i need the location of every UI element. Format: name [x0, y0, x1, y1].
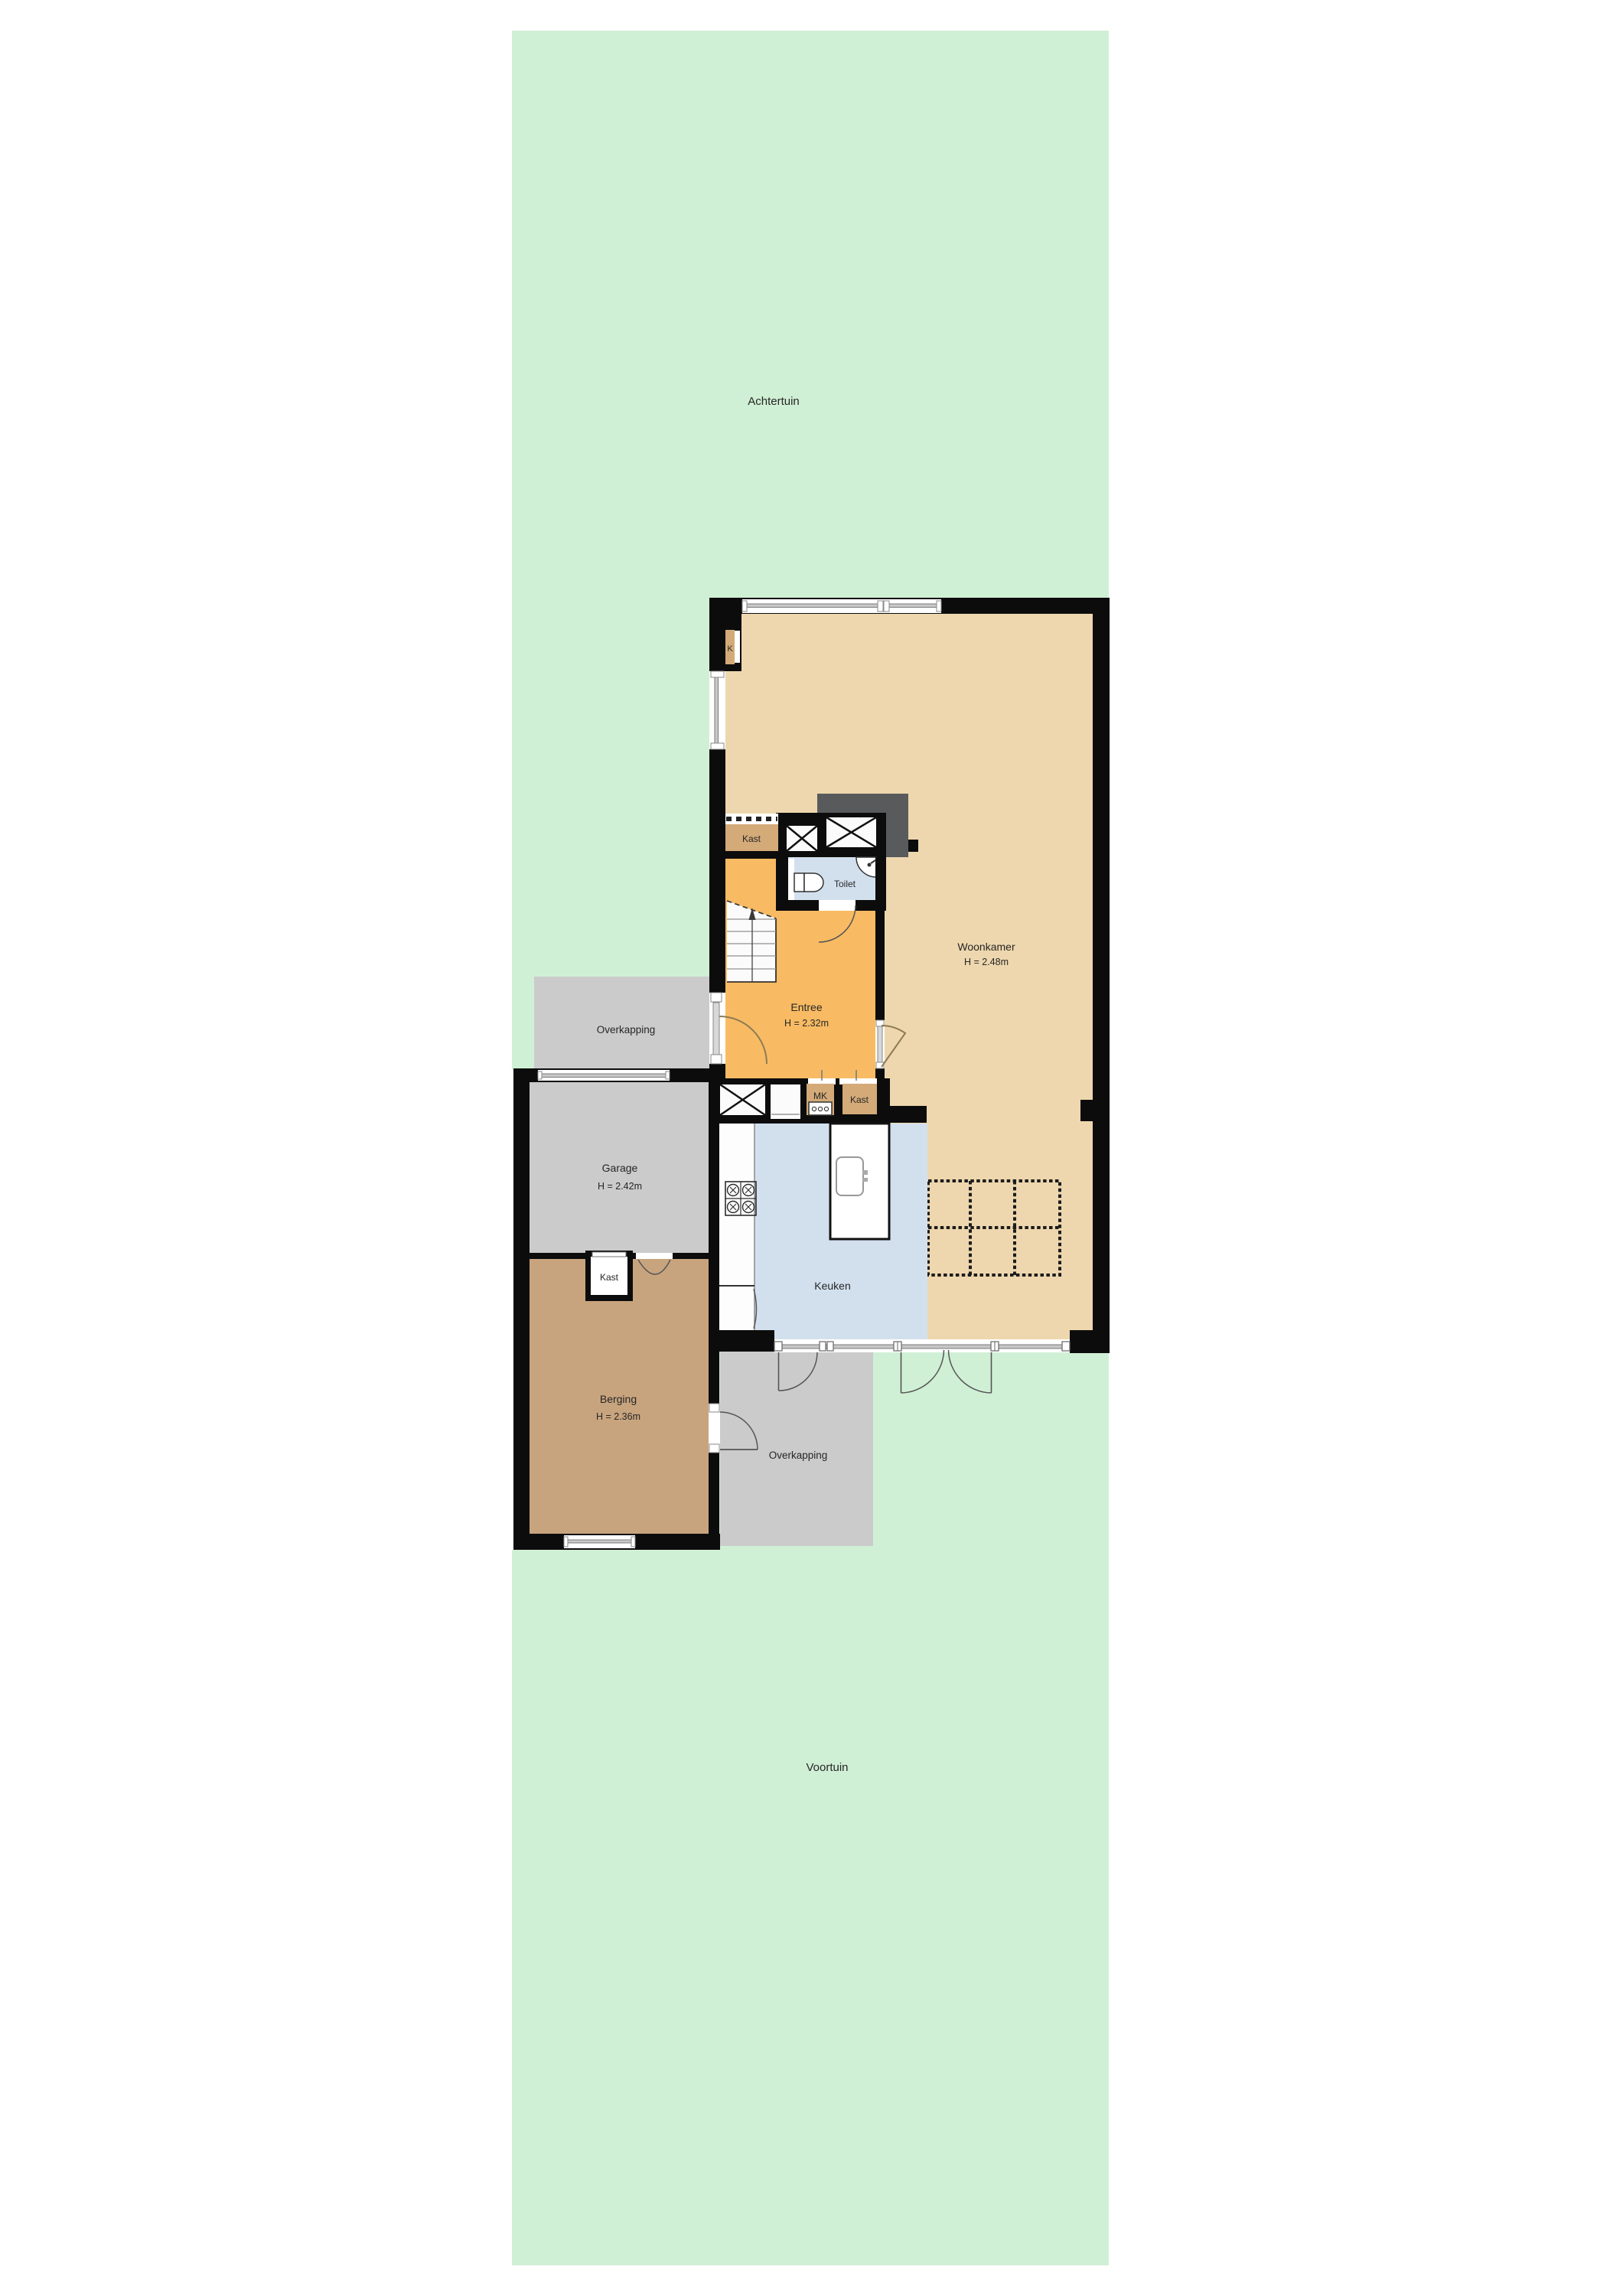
svg-text:H = 2.36m: H = 2.36m — [596, 1411, 640, 1422]
svg-text:H = 2.48m: H = 2.48m — [964, 957, 1009, 967]
svg-text:Woonkamer: Woonkamer — [957, 941, 1015, 953]
svg-text:Berging: Berging — [600, 1393, 637, 1405]
svg-text:Achtertuin: Achtertuin — [748, 395, 800, 408]
svg-text:H = 2.32m: H = 2.32m — [784, 1018, 829, 1029]
svg-text:H = 2.42m: H = 2.42m — [598, 1181, 642, 1192]
svg-text:Kast: Kast — [742, 833, 761, 844]
svg-text:Garage: Garage — [602, 1162, 638, 1174]
svg-text:Kast: Kast — [850, 1094, 869, 1105]
svg-text:Voortuin: Voortuin — [806, 1761, 848, 1774]
svg-text:MK: MK — [813, 1091, 827, 1101]
svg-text:Toilet: Toilet — [834, 879, 856, 889]
svg-text:Overkapping: Overkapping — [769, 1450, 828, 1461]
svg-text:Kast: Kast — [600, 1272, 619, 1283]
svg-text:Entree: Entree — [790, 1001, 822, 1013]
svg-text:Overkapping: Overkapping — [597, 1024, 656, 1035]
svg-text:Keuken: Keuken — [814, 1280, 850, 1292]
svg-text:K: K — [727, 644, 733, 654]
